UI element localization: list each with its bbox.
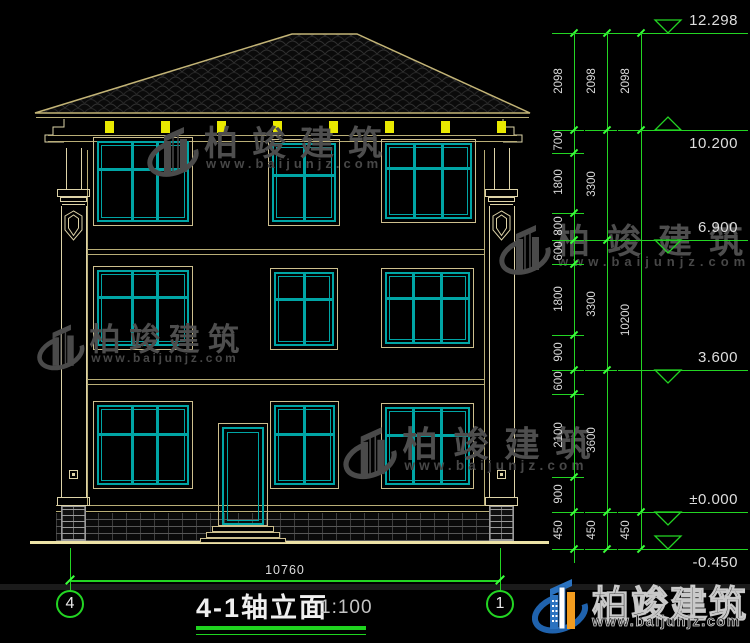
dimension-label: 2100	[552, 405, 566, 465]
elevation-label: -0.450	[610, 554, 738, 571]
elevation-label: 6.900	[610, 219, 738, 236]
dimension-label: 2098	[552, 51, 566, 111]
dimension-label: 450	[585, 500, 599, 560]
dimension-label: 3300	[585, 274, 599, 334]
bottom-dimension-label: 10760	[245, 563, 325, 577]
elevation-label: 12.298	[610, 12, 738, 29]
bottom-dimension-line	[70, 580, 500, 582]
axis-bubble-1: 1	[486, 590, 514, 618]
dimension-label: 3600	[585, 410, 599, 470]
dimension-column-line	[574, 33, 575, 563]
elevation-label: ±0.000	[610, 491, 738, 508]
elevation-label: 10.200	[610, 135, 738, 152]
dimension-extension-line	[585, 130, 617, 131]
axis-bubble-label: 4	[66, 595, 75, 613]
dimension-label: 10200	[619, 290, 633, 350]
elevation-level-line	[552, 33, 748, 34]
drawing-scale: 1:100	[320, 597, 373, 619]
dimension-label: 3300	[585, 154, 599, 214]
company-logo: 柏竣建筑 www.baijunjz.com	[530, 570, 750, 640]
dimension-extension-line	[585, 240, 617, 241]
elevation-label: 3.600	[610, 349, 738, 366]
dimension-extension-line	[500, 548, 501, 592]
drawing-title: 4-1轴立面	[196, 586, 328, 625]
dimension-column-line	[607, 33, 608, 549]
dimension-label: 450	[552, 500, 566, 560]
cad-elevation-drawing: 柏竣建筑www.baijunjz.com柏竣建筑www.baijunjz.com…	[0, 0, 750, 643]
dimension-extension-line	[70, 548, 71, 592]
title-underline-thin	[196, 634, 366, 635]
dimension-label: 450	[619, 500, 633, 560]
axis-bubble-4: 4	[56, 590, 84, 618]
company-logo-icon	[532, 573, 590, 637]
axis-bubble-label: 1	[496, 595, 505, 613]
dimension-label: 1800	[552, 269, 566, 329]
dimensions-layer: 2098700180080060018009006002100900450209…	[0, 0, 750, 643]
company-logo-site-text: www.baijunjz.com	[592, 614, 741, 630]
dimension-label: 2098	[585, 51, 599, 111]
dimension-label: 600	[552, 351, 566, 411]
dimension-column-line	[641, 33, 642, 549]
title-underline	[196, 626, 366, 630]
dimension-label: 2098	[619, 51, 633, 111]
dimension-extension-line	[585, 370, 617, 371]
